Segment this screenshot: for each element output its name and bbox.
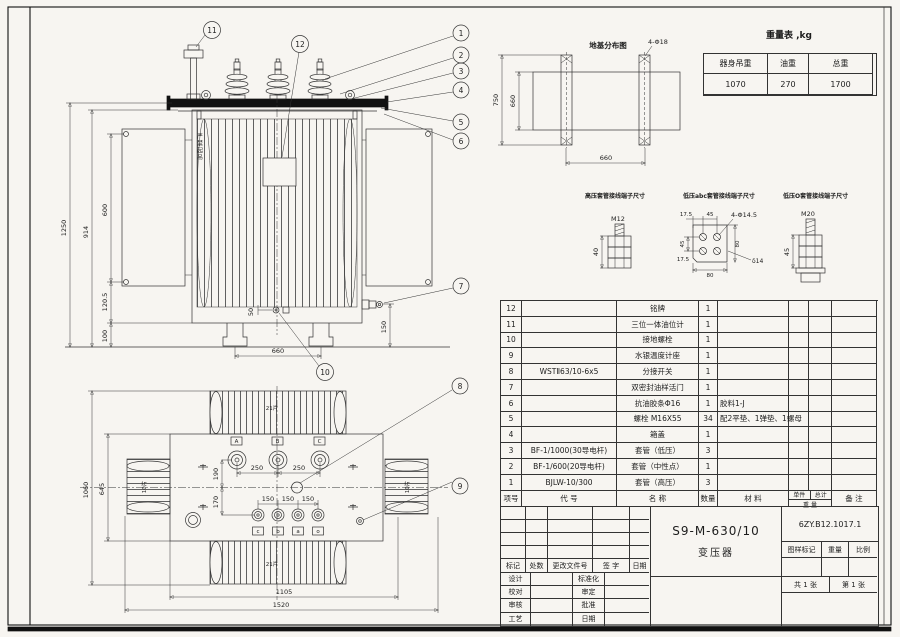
- parts-table: 12铭牌111三位一体油位计110接地螺栓19水银温度计座18WSTⅡ63/10…: [500, 300, 878, 507]
- balloon-6: 6: [459, 137, 464, 146]
- part-code: [522, 427, 617, 443]
- part-code: [522, 412, 617, 428]
- part-code: [522, 396, 617, 412]
- part-mat: [718, 348, 789, 364]
- role-design: 设计: [501, 573, 531, 586]
- part-u: [789, 364, 809, 380]
- role-standardization: 标准化: [573, 573, 605, 586]
- role-process: 工艺: [501, 613, 531, 626]
- part-u: [789, 380, 809, 396]
- lv-holes-label: 4-Φ14.5: [731, 211, 757, 219]
- dim-1250: 1250: [60, 220, 68, 237]
- weight-col-total: 总重: [809, 54, 873, 74]
- part-no: 3: [501, 443, 522, 459]
- signature-rows: 设计 标准化 校对 审定 审核 批准 工艺 日期: [501, 573, 650, 626]
- phase-mark-b: B: [276, 439, 280, 445]
- plan-view-dimensions: 1060 645 190 170 250 250 150 150 150 110…: [82, 391, 438, 613]
- part-qty: 1: [699, 364, 718, 380]
- part-t: [809, 459, 832, 475]
- part-u: [789, 459, 809, 475]
- phase-mark-c: C: [318, 439, 322, 445]
- ground-bolt: [357, 518, 364, 525]
- foot-left: [223, 323, 247, 346]
- part-qty: 1: [699, 427, 718, 443]
- dim-170: 170: [212, 496, 220, 508]
- role-approve: 批准: [573, 599, 605, 612]
- stamp-header-weight: 重量: [822, 542, 849, 558]
- plan-view: 21片 21片 10片 10片 A B C: [80, 386, 448, 600]
- part-code: BF-1/600(20导电杆): [522, 459, 617, 475]
- sheet-number: 第 1 张: [830, 577, 877, 593]
- dim-645: 645: [98, 483, 106, 495]
- part-qty: 1: [699, 380, 718, 396]
- part-code: [522, 380, 617, 396]
- lv-thickness-label: δ14: [752, 258, 763, 265]
- part-no: 12: [501, 301, 522, 317]
- part-note: [832, 443, 877, 459]
- part-u: [789, 475, 809, 491]
- dim-50: 50: [247, 308, 255, 316]
- weight-val-total: 1700: [809, 74, 873, 95]
- lv-terminal-pad: [693, 225, 727, 262]
- front-view-dimensions: 1250 914 600 120.5 100 660 50 150: [60, 103, 394, 359]
- lv-mark-b: b: [276, 529, 280, 535]
- part-code: [522, 333, 617, 349]
- balloon-8: 8: [458, 382, 463, 391]
- part-no: 10: [501, 333, 522, 349]
- role-date: 日期: [573, 613, 605, 626]
- part-name: 螺栓 M16X55: [617, 412, 699, 428]
- weight-val-body: 1070: [704, 74, 768, 95]
- oil-level-gauge: [184, 45, 203, 99]
- sheet-total: 共 1 张: [782, 577, 830, 593]
- revision-empty-rows: [501, 507, 650, 559]
- balloon-10: 10: [320, 368, 330, 377]
- parts-table-rows: 12铭牌111三位一体油位计110接地螺栓19水银温度计座18WSTⅡ63/10…: [501, 301, 878, 491]
- part-mat: [718, 459, 789, 475]
- no-lifting-warning: 严禁起吊: [196, 133, 203, 161]
- dim-1060: 1060: [82, 482, 90, 499]
- part-name: 双密封油样活门: [617, 380, 699, 396]
- part-code: [522, 301, 617, 317]
- header-weight-group: 单件 总计 重 量: [789, 491, 832, 507]
- dim-100: 100: [101, 330, 109, 342]
- stamp-header-mark: 图样标记: [782, 542, 822, 558]
- side-radiator-left: [122, 129, 192, 286]
- dim-120-5: 120.5: [101, 293, 109, 312]
- part-t: [809, 348, 832, 364]
- lv-dim-17-top: 17.5: [680, 212, 693, 218]
- parts-table-header: 项号 代 号 名 称 数量 材 料 单件 总计 重 量 备 注: [501, 491, 878, 507]
- part-no: 11: [501, 317, 522, 333]
- hv-terminal-caption: 高压套管接线端子尺寸: [585, 192, 645, 200]
- part-qty: 3: [699, 443, 718, 459]
- hv-bushing: [225, 59, 249, 99]
- terminal-details: 高压套管接线端子尺寸 M12 40 低压abc套管接线端子尺寸: [585, 192, 848, 282]
- role-examine: 审定: [573, 586, 605, 599]
- hv-terminal-stud: [608, 224, 631, 268]
- header-item-no: 项号: [501, 491, 522, 507]
- stamp-header-scale: 比例: [849, 542, 877, 558]
- fin-count-bottom: 21片: [266, 560, 279, 568]
- weight-col-body: 器身吊重: [704, 54, 768, 74]
- weight-col-oil: 油重: [768, 54, 809, 74]
- part-u: [789, 317, 809, 333]
- part-code: [522, 348, 617, 364]
- front-view: 严禁起吊: [65, 45, 450, 347]
- part-name: 接地螺栓: [617, 333, 699, 349]
- part-u: [789, 301, 809, 317]
- part-qty: 1: [699, 348, 718, 364]
- part-note: [832, 459, 877, 475]
- part-mat: 配2平垫、1弹垫、1螺母: [718, 412, 789, 428]
- lifting-lug: [202, 91, 211, 100]
- part-u: [789, 443, 809, 459]
- dim-1105: 1105: [276, 588, 293, 596]
- part-mat: 胶料1-J: [718, 396, 789, 412]
- part-mat: [718, 301, 789, 317]
- balloon-3: 3: [459, 67, 464, 76]
- balloon-1: 1: [459, 29, 464, 38]
- part-t: [809, 396, 832, 412]
- part-no: 8: [501, 364, 522, 380]
- part-mat: [718, 317, 789, 333]
- dim-660-feet: 660: [272, 347, 284, 355]
- part-note: [832, 301, 877, 317]
- hv-thread-label: M12: [611, 215, 625, 223]
- header-code: 代 号: [522, 491, 617, 507]
- part-u: [789, 333, 809, 349]
- part-t: [809, 475, 832, 491]
- rev-header-count: 处数: [526, 559, 548, 573]
- part-qty: 1: [699, 301, 718, 317]
- part-no: 5: [501, 412, 522, 428]
- part-note: [832, 333, 877, 349]
- drawing-number: 6ZY.B12.1017.1: [782, 507, 878, 542]
- dim-190: 190: [212, 468, 220, 480]
- part-no: 6: [501, 396, 522, 412]
- part-code: BJLW-10/300: [522, 475, 617, 491]
- role-check: 校对: [501, 586, 531, 599]
- part-no: 4: [501, 427, 522, 443]
- weight-val-oil: 270: [768, 74, 809, 95]
- lvo-thread-label: M20: [801, 210, 815, 218]
- part-note: [832, 364, 877, 380]
- part-t: [809, 380, 832, 396]
- lvo-terminal-stud: [796, 219, 825, 282]
- part-t: [809, 364, 832, 380]
- part-name: 箱盖: [617, 427, 699, 443]
- part-note: [832, 427, 877, 443]
- dim-150-1: 150: [262, 495, 274, 503]
- weight-table-title: 重量表 ,kg: [703, 28, 875, 41]
- part-qty: 1: [699, 396, 718, 412]
- part-no: 2: [501, 459, 522, 475]
- fin-count-top: 21片: [266, 404, 279, 412]
- balloon-7: 7: [459, 282, 464, 291]
- part-code: [522, 317, 617, 333]
- lv-dim-80-right: 80: [735, 240, 741, 247]
- balloon-9: 9: [458, 482, 463, 491]
- part-mat: [718, 443, 789, 459]
- header-name: 名 称: [617, 491, 699, 507]
- dim-600: 600: [101, 204, 109, 216]
- header-qty: 数量: [699, 491, 718, 507]
- part-note: [832, 475, 877, 491]
- part-no: 7: [501, 380, 522, 396]
- phase-mark-a: A: [235, 439, 239, 445]
- lvo-terminal-caption: 低压O套管接线端子尺寸: [782, 192, 848, 200]
- part-qty: 1: [699, 459, 718, 475]
- part-mat: [718, 427, 789, 443]
- title-block: 标记 处数 更改文件号 签 字 日期 设计 标准化 校对 审定 审核 批准 工艺…: [500, 506, 879, 627]
- part-no: 9: [501, 348, 522, 364]
- part-code: BF-1/1000(30导电杆): [522, 443, 617, 459]
- revision-header-row: 标记 处数 更改文件号 签 字 日期: [501, 559, 650, 573]
- dim-914: 914: [82, 226, 90, 238]
- header-material: 材 料: [718, 491, 789, 507]
- balloon-11: 11: [207, 26, 217, 35]
- part-t: [809, 443, 832, 459]
- cover-bolt-mark: [198, 504, 208, 510]
- cover-bolt-mark: [198, 464, 208, 470]
- part-qty: 1: [699, 333, 718, 349]
- header-unit-weight: 单件: [789, 491, 811, 499]
- lv-bushings-plan: c b a o: [252, 509, 324, 535]
- part-u: [789, 396, 809, 412]
- lv-mark-a: a: [296, 529, 299, 535]
- part-t: [809, 333, 832, 349]
- foundation-title: 地基分布图: [589, 40, 627, 50]
- part-mat: [718, 475, 789, 491]
- rev-header-date: 日期: [630, 559, 649, 573]
- lv-terminal-caption: 低压abc套管接线端子尺寸: [682, 192, 755, 200]
- title-block-revision-area: 标记 处数 更改文件号 签 字 日期 设计 标准化 校对 审定 审核 批准 工艺…: [501, 507, 651, 626]
- weight-table: 器身吊重 油重 总重 1070 270 1700: [703, 53, 877, 96]
- tank-cover: [170, 99, 385, 107]
- dim-660-v: 660: [509, 95, 517, 107]
- dim-660-h: 660: [600, 154, 612, 162]
- part-name: 抗油胶条Φ16: [617, 396, 699, 412]
- drain-plug: [273, 307, 289, 313]
- title-block-product-area: S9-M-630/10 变压器: [651, 507, 782, 626]
- anchor-holes-label: 4-Φ18: [648, 38, 668, 46]
- part-mat: [718, 333, 789, 349]
- dim-1520: 1520: [273, 601, 290, 609]
- part-qty: 1: [699, 317, 718, 333]
- hv-bushing: [308, 59, 332, 99]
- part-mat: [718, 364, 789, 380]
- part-t: [809, 412, 832, 428]
- balloon-2: 2: [459, 51, 464, 60]
- part-note: [832, 412, 877, 428]
- dim-250-2: 250: [293, 464, 305, 472]
- oil-sampling-valve: [362, 300, 383, 309]
- part-t: [809, 317, 832, 333]
- part-note: [832, 348, 877, 364]
- part-name: 铭牌: [617, 301, 699, 317]
- dim-750: 750: [492, 94, 500, 106]
- side-radiator-right: [362, 129, 432, 286]
- fin-count-right: 10片: [403, 481, 411, 494]
- lv-dim-45-top: 45: [707, 212, 714, 218]
- part-qty: 3: [699, 475, 718, 491]
- cover-bolt-mark: [348, 504, 358, 510]
- foundation-plan: 地基分布图 4-Φ18 750 660 660: [492, 38, 680, 166]
- part-name: 套管（中性点）: [617, 459, 699, 475]
- product-name: 变压器: [698, 544, 734, 559]
- part-u: [789, 412, 809, 428]
- part-qty: 34: [699, 412, 718, 428]
- foot-right: [309, 323, 333, 346]
- rev-header-doc-no: 更改文件号: [548, 559, 593, 573]
- part-name: 套管（高压）: [617, 475, 699, 491]
- lv-dim-45-left: 45: [680, 240, 686, 247]
- part-u: [789, 427, 809, 443]
- lv-mark-o: o: [316, 529, 320, 535]
- lvo-dim-45: 45: [783, 248, 791, 256]
- nameplate: [263, 158, 296, 186]
- part-name: 三位一体油位计: [617, 317, 699, 333]
- part-note: [832, 317, 877, 333]
- part-t: [809, 301, 832, 317]
- lv-mark-c: c: [256, 529, 259, 535]
- role-review: 审核: [501, 599, 531, 612]
- hv-dim-40: 40: [592, 248, 600, 256]
- part-note: [832, 380, 877, 396]
- rev-header-signature: 签 字: [593, 559, 630, 573]
- balloon-5: 5: [459, 118, 464, 127]
- part-u: [789, 348, 809, 364]
- fin-count-left: 10片: [140, 481, 148, 494]
- lv-dim-80-bottom: 80: [707, 273, 714, 279]
- dim-150-valve: 150: [380, 321, 388, 333]
- hv-bushing: [266, 59, 290, 99]
- part-name: 水银温度计座: [617, 348, 699, 364]
- part-t: [809, 427, 832, 443]
- dim-250-1: 250: [251, 464, 263, 472]
- part-no: 1: [501, 475, 522, 491]
- cover-bolt-mark: [348, 464, 358, 470]
- dim-150-2: 150: [282, 495, 294, 503]
- header-total-weight: 总计: [811, 491, 832, 499]
- part-mat: [718, 380, 789, 396]
- part-name: 分接开关: [617, 364, 699, 380]
- lv-dim-17-bottom: 17.5: [677, 257, 690, 263]
- part-note: [832, 396, 877, 412]
- title-block-stamp-area: 6ZY.B12.1017.1 图样标记 重量 比例 共 1 张 第 1 张: [782, 507, 878, 626]
- balloon-4: 4: [459, 86, 464, 95]
- drawing-sheet: 严禁起吊: [0, 0, 900, 637]
- rev-header-mark: 标记: [501, 559, 526, 573]
- product-code: S9-M-630/10: [672, 524, 759, 538]
- balloon-12: 12: [295, 40, 305, 49]
- hv-bushings-plan: A B C: [228, 437, 329, 469]
- dim-150-3: 150: [302, 495, 314, 503]
- part-code: WSTⅡ63/10-6x5: [522, 364, 617, 380]
- jacking-pad: [186, 513, 201, 528]
- header-note: 备 注: [832, 491, 877, 507]
- part-name: 套管（低压）: [617, 443, 699, 459]
